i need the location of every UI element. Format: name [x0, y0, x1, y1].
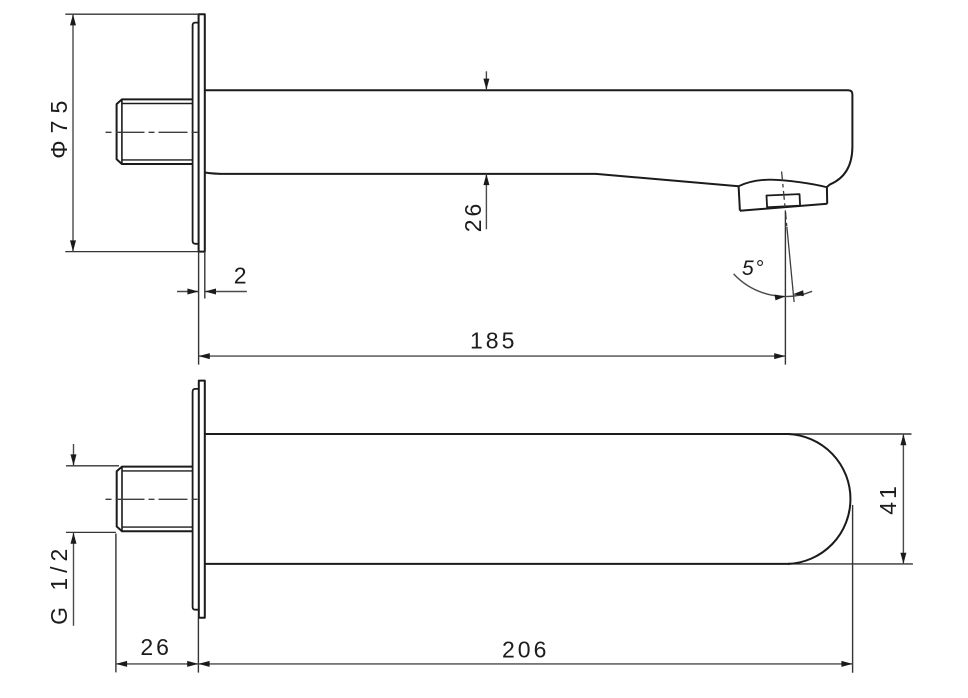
svg-text:Φ75: Φ75 — [46, 94, 72, 159]
svg-text:206: 206 — [502, 637, 549, 663]
svg-text:G 1/2: G 1/2 — [46, 544, 72, 625]
svg-text:2: 2 — [234, 263, 247, 289]
svg-text:41: 41 — [875, 483, 901, 515]
svg-text:5°: 5° — [742, 257, 765, 280]
svg-text:26: 26 — [140, 634, 172, 660]
svg-text:26: 26 — [460, 201, 486, 233]
svg-text:185: 185 — [470, 328, 517, 354]
